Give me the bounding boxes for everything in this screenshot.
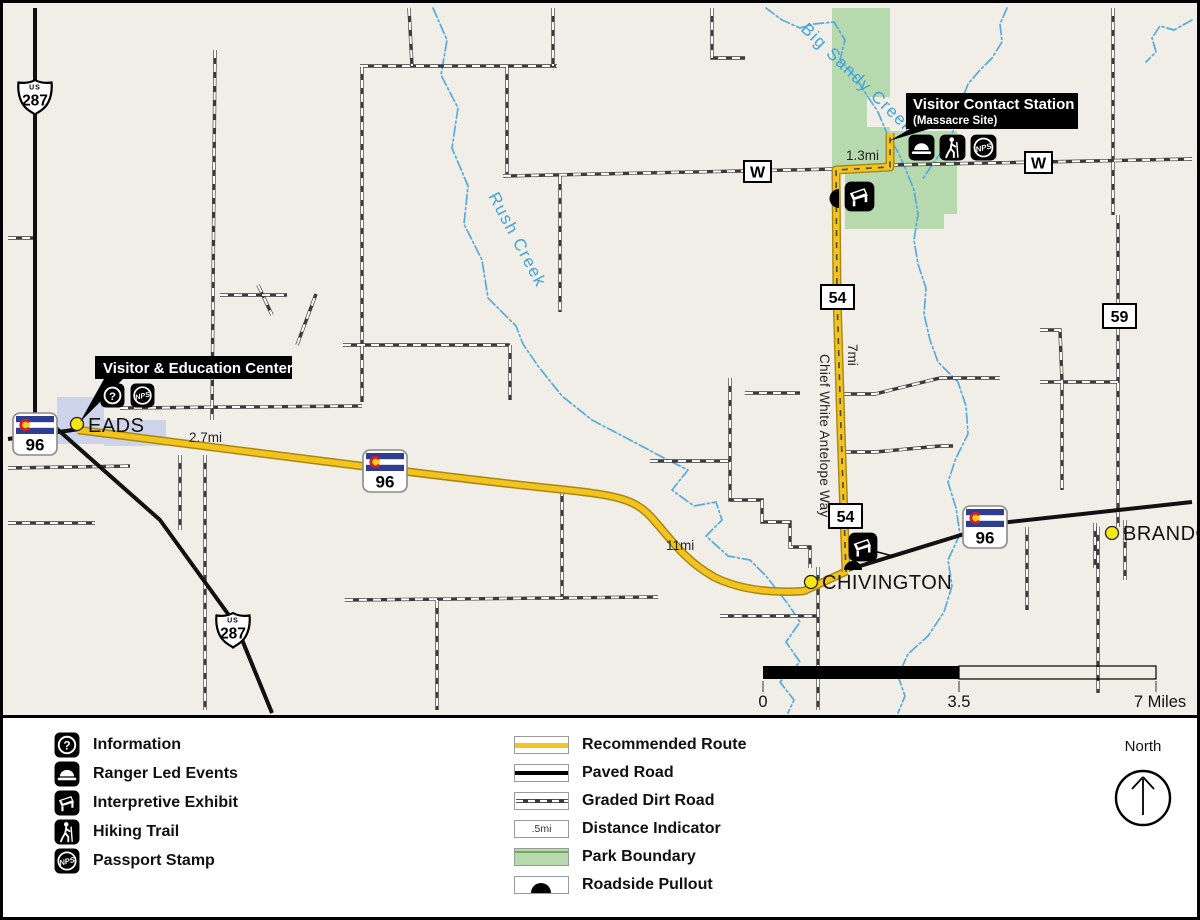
recommended-route-swatch: [514, 736, 569, 754]
distance-label-eads: 2.7mi: [189, 430, 222, 445]
map-canvas: ? NPS US 287: [0, 0, 1200, 715]
distance-label-cwaw: 7mi: [845, 344, 860, 366]
svg-text:W: W: [1031, 156, 1047, 173]
legend-item-paved-road: Paved Road: [514, 764, 674, 782]
road-59-marker: 59: [1103, 304, 1136, 328]
legend-label: Paved Road: [582, 764, 674, 782]
graded-dirt-road-swatch: [514, 792, 569, 810]
callout-subtitle: (Massacre Site): [913, 115, 998, 127]
callout-title: Visitor Contact Station: [913, 96, 1074, 113]
legend-label: Park Boundary: [582, 848, 696, 866]
co-96-shield: [363, 450, 407, 492]
legend-label: Ranger Led Events: [93, 765, 238, 783]
passport-stamp-icon: [971, 135, 997, 161]
scale-full: 7 Miles: [1134, 693, 1186, 711]
legend-label: Distance Indicator: [582, 820, 721, 838]
ranger-led-events-icon: [909, 135, 935, 161]
legend-item-graded-dirt-road: Graded Dirt Road: [514, 792, 714, 810]
legend-item-distance-indicator: .5mi Distance Indicator: [514, 820, 721, 838]
interpretive-exhibit-icon: [849, 533, 878, 562]
us-287-shield: [18, 80, 51, 115]
roadside-pullout-swatch: [514, 876, 569, 894]
passport-stamp-icon: [131, 384, 155, 408]
distance-indicator-swatch: .5mi: [514, 820, 569, 838]
legend-item-recommended-route: Recommended Route: [514, 736, 746, 754]
distance-label-mid: 11mi: [666, 538, 694, 553]
co-96-shield: [13, 413, 57, 455]
distance-label-spur: 1.3mi: [846, 148, 879, 163]
scale-zero: 0: [758, 693, 767, 711]
svg-text:54: 54: [837, 509, 855, 526]
town-label: EADS: [88, 415, 144, 437]
legend-label: Hiking Trail: [93, 823, 179, 841]
road-54-marker: 54: [829, 504, 862, 528]
town-chivington: CHIVINGTON: [805, 572, 953, 594]
legend-item-hiking-trail: Hiking Trail: [54, 819, 179, 845]
legend-item-information: Information: [54, 732, 181, 758]
svg-text:59: 59: [1111, 309, 1129, 326]
legend-item-roadside-pullout: Roadside Pullout: [514, 876, 713, 894]
information-icon: [101, 384, 125, 408]
legend-item-park-boundary: Park Boundary: [514, 848, 696, 866]
legend-item-interpretive-exhibit: Interpretive Exhibit: [54, 790, 238, 816]
legend-item-ranger-led-events: Ranger Led Events: [54, 761, 238, 787]
passport-stamp-icon: [55, 849, 80, 874]
interpretive-exhibit-icon: [55, 791, 80, 816]
interpretive-exhibit-icon: [845, 182, 875, 212]
us-287-shield: [216, 613, 249, 648]
callout-title: Visitor & Education Center: [103, 360, 293, 377]
town-label: CHIVINGTON: [822, 572, 952, 594]
north-arrow: North: [1095, 733, 1195, 853]
svg-text:54: 54: [829, 290, 847, 307]
road-w-marker: W: [1025, 152, 1052, 173]
svg-text:W: W: [750, 165, 766, 182]
legend-item-passport-stamp: Passport Stamp: [54, 848, 215, 874]
legend-panel: Information Ranger Led Events Interpreti…: [0, 715, 1200, 920]
park-map-page: ? NPS US 287: [0, 0, 1200, 920]
paved-road-swatch: [514, 764, 569, 782]
information-icon: [55, 733, 80, 758]
ranger-led-events-icon: [55, 762, 80, 787]
co-96-shield: [963, 506, 1007, 548]
park-boundary-swatch: [514, 848, 569, 866]
legend-label: Graded Dirt Road: [582, 792, 714, 810]
road-54-marker: 54: [821, 285, 854, 309]
legend-label: Information: [93, 736, 181, 754]
scale-half: 3.5: [948, 693, 971, 711]
town-label: BRANDON: [1123, 523, 1200, 545]
legend-label: Interpretive Exhibit: [93, 794, 238, 812]
hiking-trail-icon: [55, 820, 80, 845]
legend-label: Recommended Route: [582, 736, 746, 754]
road-w-marker: W: [744, 161, 771, 182]
legend-label: Roadside Pullout: [582, 876, 713, 894]
chief-white-antelope-way-label: Chief White Antelope Way: [817, 354, 832, 518]
distance-sample: .5mi: [532, 823, 552, 835]
north-label: North: [1125, 738, 1162, 755]
hiking-trail-icon: [940, 135, 966, 161]
legend-label: Passport Stamp: [93, 852, 215, 870]
